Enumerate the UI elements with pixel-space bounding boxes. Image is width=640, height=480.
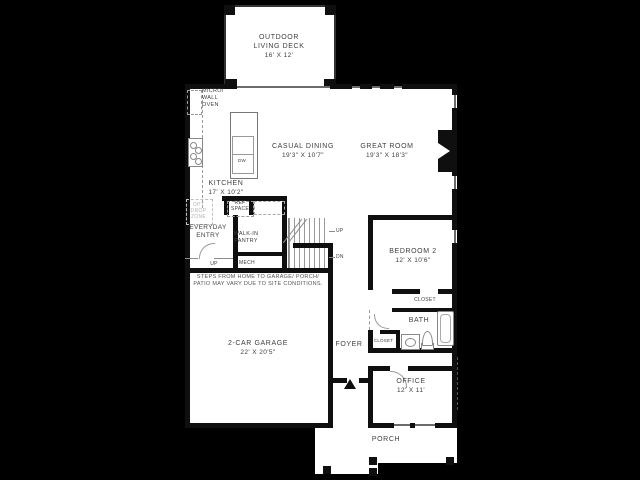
room-name: OUTDOOR LIVING DECK	[254, 33, 305, 51]
dw-label: DW	[232, 158, 252, 164]
window	[352, 86, 360, 88]
room-dims: 17' X 10'2"	[208, 188, 243, 197]
stairs-up-label: UP	[336, 228, 350, 234]
mech-label: MECH	[236, 260, 258, 266]
wall	[402, 84, 457, 89]
dishwasher	[232, 154, 254, 174]
deck-post	[224, 5, 235, 15]
foyer-closet-label: CLOSET	[371, 338, 396, 344]
bath-label: BATH	[394, 316, 444, 325]
room-dims: 16' X 12'	[265, 51, 294, 60]
wall	[368, 215, 457, 220]
pocket-door	[369, 310, 372, 330]
window	[454, 95, 456, 108]
window	[394, 86, 402, 88]
front-door-marker	[344, 379, 356, 389]
room-dims: 19'3" X 10'7"	[282, 151, 324, 160]
room-dims: 12' X 11'	[397, 386, 425, 395]
stair-divider	[293, 243, 332, 248]
wall	[408, 366, 457, 371]
room-dims: 22' X 20'5"	[240, 348, 275, 357]
wall	[452, 108, 457, 130]
entry-threshold	[185, 258, 198, 259]
floor-plan: OUTDOOR LIVING DECK 16' X 12' MICRO/ WAL…	[0, 0, 640, 480]
pantry-label: WALK-IN PANTRY	[224, 231, 268, 245]
wall	[330, 84, 352, 89]
deck-door-line	[237, 86, 330, 88]
wall	[435, 423, 457, 428]
wall	[185, 268, 333, 273]
wall	[452, 189, 457, 230]
kitchen-label: KITCHEN 17' X 10'2"	[176, 179, 276, 197]
window	[454, 176, 456, 189]
counter-box	[254, 201, 285, 215]
office-label: OFFICE 12' X 11'	[361, 377, 461, 395]
porch-label: PORCH	[361, 435, 411, 444]
room-dims: 19'3" X 18'3"	[366, 151, 408, 160]
room-name: 2-CAR GARAGE	[228, 339, 288, 348]
stairs-dn-label: DN	[336, 254, 350, 260]
porch-post	[446, 457, 454, 465]
great-room-label: GREAT ROOM 19'3" X 18'3"	[337, 142, 437, 160]
deck-post	[325, 5, 336, 15]
wall	[438, 289, 457, 294]
porch-post	[323, 466, 331, 474]
wall	[452, 84, 457, 95]
room-name: BEDROOM 2	[389, 247, 436, 256]
wall	[392, 289, 420, 294]
wall	[360, 84, 372, 89]
garage-label: 2-CAR GARAGE 22' X 20'5"	[208, 339, 308, 357]
wall	[380, 84, 394, 89]
tick	[329, 257, 335, 258]
wall	[328, 243, 333, 268]
micro-oven-cabinet	[187, 90, 202, 115]
room-name: GREAT ROOM	[360, 142, 413, 151]
window	[394, 424, 410, 426]
room-name: KITCHEN	[209, 179, 244, 188]
room-dims: 12' X 10'6"	[395, 256, 430, 265]
entry-threshold	[214, 258, 233, 259]
entry-up-label: UP	[206, 261, 222, 267]
bedroom2-label: BEDROOM 2 12' X 10'6"	[363, 247, 463, 265]
room-name: OFFICE	[396, 377, 425, 386]
deck-label: OUTDOOR LIVING DECK 16' X 12'	[229, 33, 329, 60]
bedroom-closet-label: CLOSET	[400, 297, 450, 303]
window	[415, 424, 435, 426]
room-name: CASUAL DINING	[272, 142, 334, 151]
window	[372, 86, 380, 88]
porch-post	[369, 457, 377, 465]
micro-oven-label: MICRO/ WALL OVEN	[202, 88, 234, 109]
wall	[396, 330, 400, 348]
wall	[368, 366, 373, 427]
foyer-label: FOYER	[324, 340, 374, 349]
opt-drop-zone-label: OPT DROP ZONE	[186, 202, 211, 220]
wall	[233, 252, 283, 256]
island-sink	[232, 136, 254, 155]
tick	[329, 231, 335, 232]
porch-post	[369, 468, 377, 476]
cooktop	[188, 138, 203, 167]
bath-sink	[401, 334, 420, 350]
disclaimer-text: STEPS FROM HOME TO GARAGE/ PORCH/ PATIO …	[192, 274, 324, 288]
window	[454, 230, 456, 243]
wall	[185, 423, 333, 428]
ref-space-label: REF SPACE	[229, 200, 251, 212]
